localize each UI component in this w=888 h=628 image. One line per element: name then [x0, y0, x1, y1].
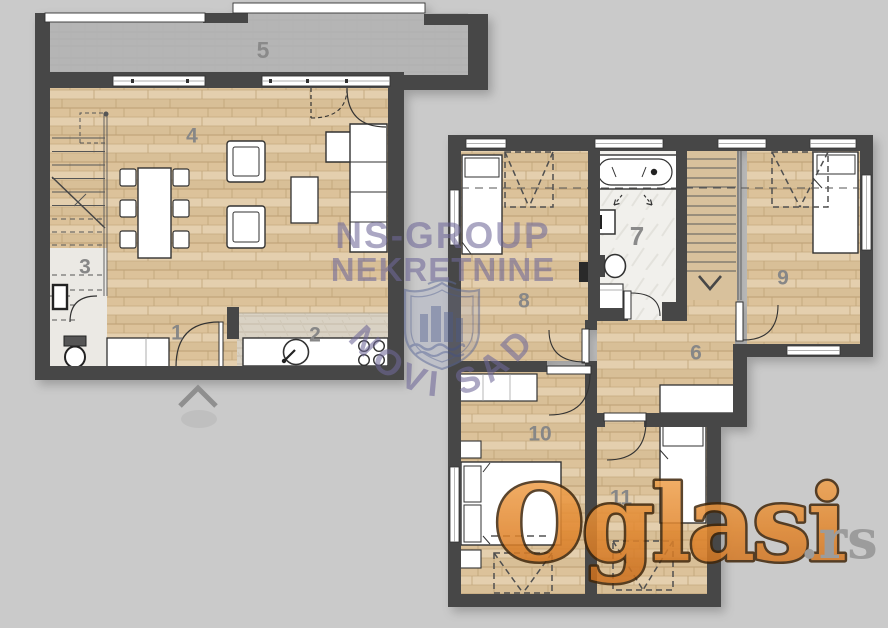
bathtub: [593, 155, 677, 189]
room-label-bedroom1: 8: [518, 290, 530, 313]
toilet-upper: [597, 255, 626, 278]
terrace-railing: [233, 3, 425, 13]
room-label-bathroom: 3: [79, 256, 91, 279]
entrance-arrow: [180, 388, 216, 406]
room-label-bedroom3: 10: [528, 423, 551, 446]
armchair: [227, 206, 265, 248]
dining-table: [138, 168, 171, 258]
entrance-door-leaf: [219, 322, 223, 368]
portal-tld-text: .rs: [800, 507, 878, 571]
coffee-table: [291, 177, 318, 223]
hall-closet: [107, 338, 169, 368]
nightstand: [459, 441, 481, 458]
kitchen-sink: [284, 340, 309, 365]
room-label-hall: 1: [171, 322, 183, 345]
terrace-railing: [45, 13, 205, 22]
agency-name-text: NS-GROUP: [335, 215, 550, 256]
hall-dresser: [660, 385, 736, 413]
stairs-floor: [684, 151, 737, 320]
room-label-living: 4: [186, 125, 198, 148]
bathroom-sink: [53, 285, 67, 309]
bed-single: [813, 152, 858, 253]
portal-logo: Oglasi .rs: [494, 462, 878, 585]
room-label-hallway: 6: [690, 342, 702, 365]
floorplan-image: 1 2 3 4 5: [0, 0, 888, 628]
room-label-bedroom2: 9: [777, 267, 789, 290]
room-label-bathroom-upper: 7: [630, 221, 644, 251]
portal-name-text: Oglasi: [494, 462, 845, 585]
room-label-kitchen: 2: [309, 324, 321, 347]
agency-shield-logo: [405, 281, 479, 370]
nightstand: [459, 550, 481, 568]
room-label-terrace: 5: [257, 37, 270, 63]
toilet: [64, 336, 86, 368]
armchair: [227, 141, 265, 182]
